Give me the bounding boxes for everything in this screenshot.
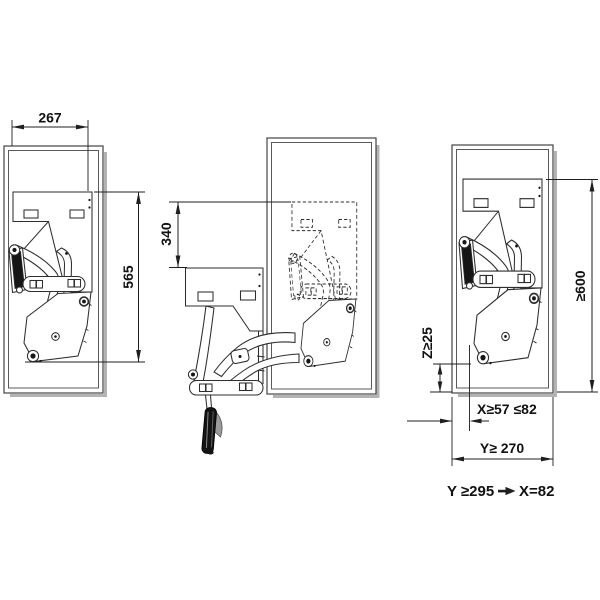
- right-arrow-icon: [498, 487, 516, 495]
- pull-handle: [201, 395, 222, 455]
- dim-label-cabinet-height: ≥600: [572, 270, 588, 301]
- drawing-canvas: 267 565: [0, 0, 600, 600]
- technical-drawing-page: 267 565: [0, 0, 600, 600]
- view-open-position: 340: [158, 138, 379, 455]
- condition-note: Y ≥295 X=82: [447, 483, 554, 500]
- dim-label-clearance: Z≥25: [419, 327, 435, 359]
- dim-label-depth: Y≥ 270: [480, 440, 524, 456]
- dim-label-height: 565: [120, 265, 136, 289]
- dim-label-width: 267: [38, 110, 62, 126]
- dimension-cabinet-height-600: ≥600: [546, 180, 598, 393]
- dim-label-front-distance: X≥57 ≤82: [477, 401, 537, 417]
- view-installation: ≥600 Z≥25 X≥57 ≤82 Y≥ 270: [407, 145, 598, 466]
- dim-label-travel: 340: [158, 222, 174, 246]
- note-condition: Y ≥295: [447, 483, 494, 500]
- note-result: X=82: [519, 483, 554, 500]
- view-closed-position: 267 565: [4, 110, 145, 397]
